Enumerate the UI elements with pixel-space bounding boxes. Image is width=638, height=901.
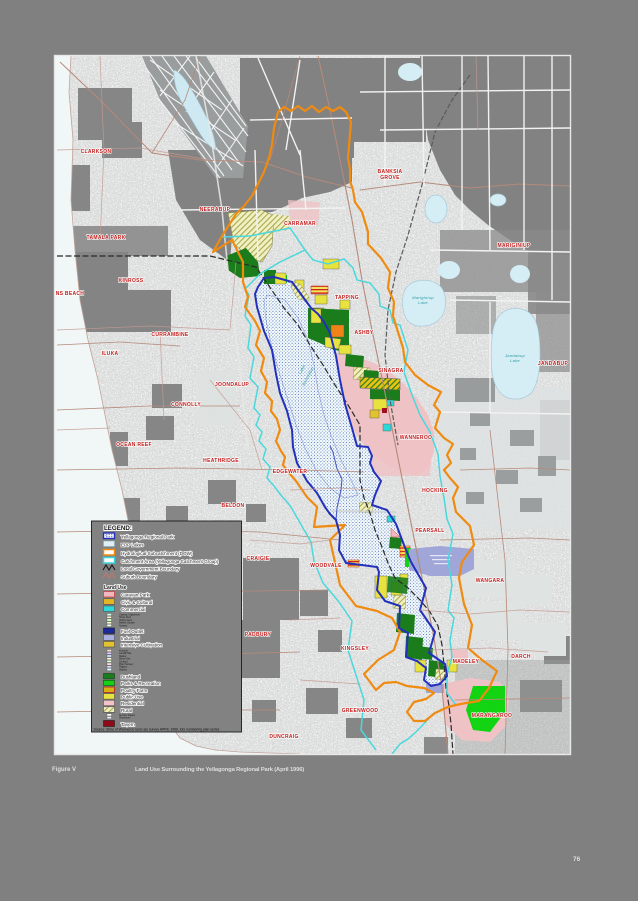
svg-text:Caravan Park: Caravan Park (121, 593, 150, 598)
svg-text:Civic & Cultural: Civic & Cultural (121, 600, 152, 605)
svg-text:NEERABUP: NEERABUP (200, 207, 231, 213)
svg-text:RNS BEACH: RNS BEACH (52, 291, 85, 297)
svg-text:Commercial: Commercial (121, 607, 146, 612)
svg-text:CONNOLLY: CONNOLLY (171, 402, 201, 408)
svg-text:EPP Lakes: EPP Lakes (121, 543, 144, 548)
svg-text:KINROSS: KINROSS (119, 278, 144, 284)
svg-text:ILUKA: ILUKA (102, 351, 119, 357)
svg-text:DARCH: DARCH (511, 654, 531, 660)
svg-text:Yellagonga Regional Park: Yellagonga Regional Park (121, 535, 174, 540)
svg-text:BELDON: BELDON (222, 503, 245, 509)
svg-text:CARRAMAR: CARRAMAR (284, 221, 316, 227)
svg-text:HEATHRIDGE: HEATHRIDGE (203, 458, 239, 464)
svg-text:EDGEWATER: EDGEWATER (273, 469, 308, 475)
svg-text:PADBURY: PADBURY (245, 632, 272, 638)
svg-text:LEGEND:: LEGEND: (104, 525, 132, 532)
svg-text:Tavern: Tavern (121, 722, 135, 727)
svg-text:Lake: Lake (510, 358, 520, 363)
svg-text:Fuel Outlet: Fuel Outlet (121, 629, 144, 634)
svg-text:WANNEROO: WANNEROO (400, 435, 432, 441)
svg-text:Poultry Farm: Poultry Farm (121, 688, 147, 693)
svg-text:Industrial: Industrial (121, 636, 140, 641)
svg-text:Source: Shire of Wanneroo land: Source: Shire of Wanneroo land use surve… (94, 728, 220, 732)
svg-text:PEARSALL: PEARSALL (415, 528, 444, 534)
svg-text:TAMALA PARK: TAMALA PARK (86, 235, 125, 241)
svg-text:Figure V: Figure V (52, 767, 76, 773)
svg-text:HOCKING: HOCKING (422, 488, 448, 494)
svg-text:JANDABUP: JANDABUP (538, 361, 569, 367)
svg-text:MARIGINIUP: MARIGINIUP (498, 243, 531, 249)
svg-text:Nursery: Nursery (119, 624, 128, 627)
svg-text:CURRAMBINE: CURRAMBINE (151, 332, 189, 338)
svg-text:ASHBY: ASHBY (354, 330, 373, 336)
svg-text:OCEAN REEF: OCEAN REEF (116, 442, 152, 448)
svg-text:76: 76 (573, 856, 581, 863)
svg-text:Intensive Cultivation: Intensive Cultivation (121, 643, 163, 648)
svg-text:MADELEY: MADELEY (453, 659, 480, 665)
svg-text:Catchment Area (Yellagonga Cat: Catchment Area (Yellagonga Catchment Gro… (121, 559, 219, 564)
svg-text:Residential: Residential (121, 701, 144, 706)
svg-text:Public Use: Public Use (121, 695, 143, 700)
svg-text:Rural: Rural (121, 708, 132, 713)
svg-text:Land Use Surrounding the Yella: Land Use Surrounding the Yellagonga Regi… (135, 767, 304, 773)
svg-text:MARANGAROO: MARANGAROO (472, 713, 513, 719)
svg-text:Lake: Lake (418, 300, 428, 305)
svg-text:WANGARA: WANGARA (476, 578, 505, 584)
svg-text:Showroom: Showroom (119, 717, 130, 720)
svg-text:Local Government Boundary: Local Government Boundary (121, 567, 180, 572)
svg-text:CRAIGIE: CRAIGIE (247, 556, 270, 562)
svg-text:GROVE: GROVE (380, 175, 400, 181)
svg-text:TAPPING: TAPPING (335, 295, 359, 301)
svg-text:Hydrological Subcatchment (DOW: Hydrological Subcatchment (DOW) (121, 551, 193, 556)
svg-text:Stables: Stables (119, 668, 128, 671)
svg-text:Bushland: Bushland (121, 675, 141, 680)
svg-text:DUNCRAIG: DUNCRAIG (269, 734, 298, 740)
svg-text:GREENWOOD: GREENWOOD (342, 708, 379, 714)
svg-text:Suburb Boundary: Suburb Boundary (121, 575, 157, 580)
svg-text:CLARKSON: CLARKSON (81, 149, 112, 155)
svg-text:Parks & Recreation: Parks & Recreation (121, 681, 161, 686)
svg-text:WOODVALE: WOODVALE (310, 563, 342, 569)
svg-text:KINGSLEY: KINGSLEY (341, 646, 369, 652)
svg-text:SINAGRA: SINAGRA (378, 368, 403, 374)
svg-text:JOONDALUP: JOONDALUP (215, 382, 249, 388)
svg-text:Land Use: Land Use (104, 585, 127, 591)
